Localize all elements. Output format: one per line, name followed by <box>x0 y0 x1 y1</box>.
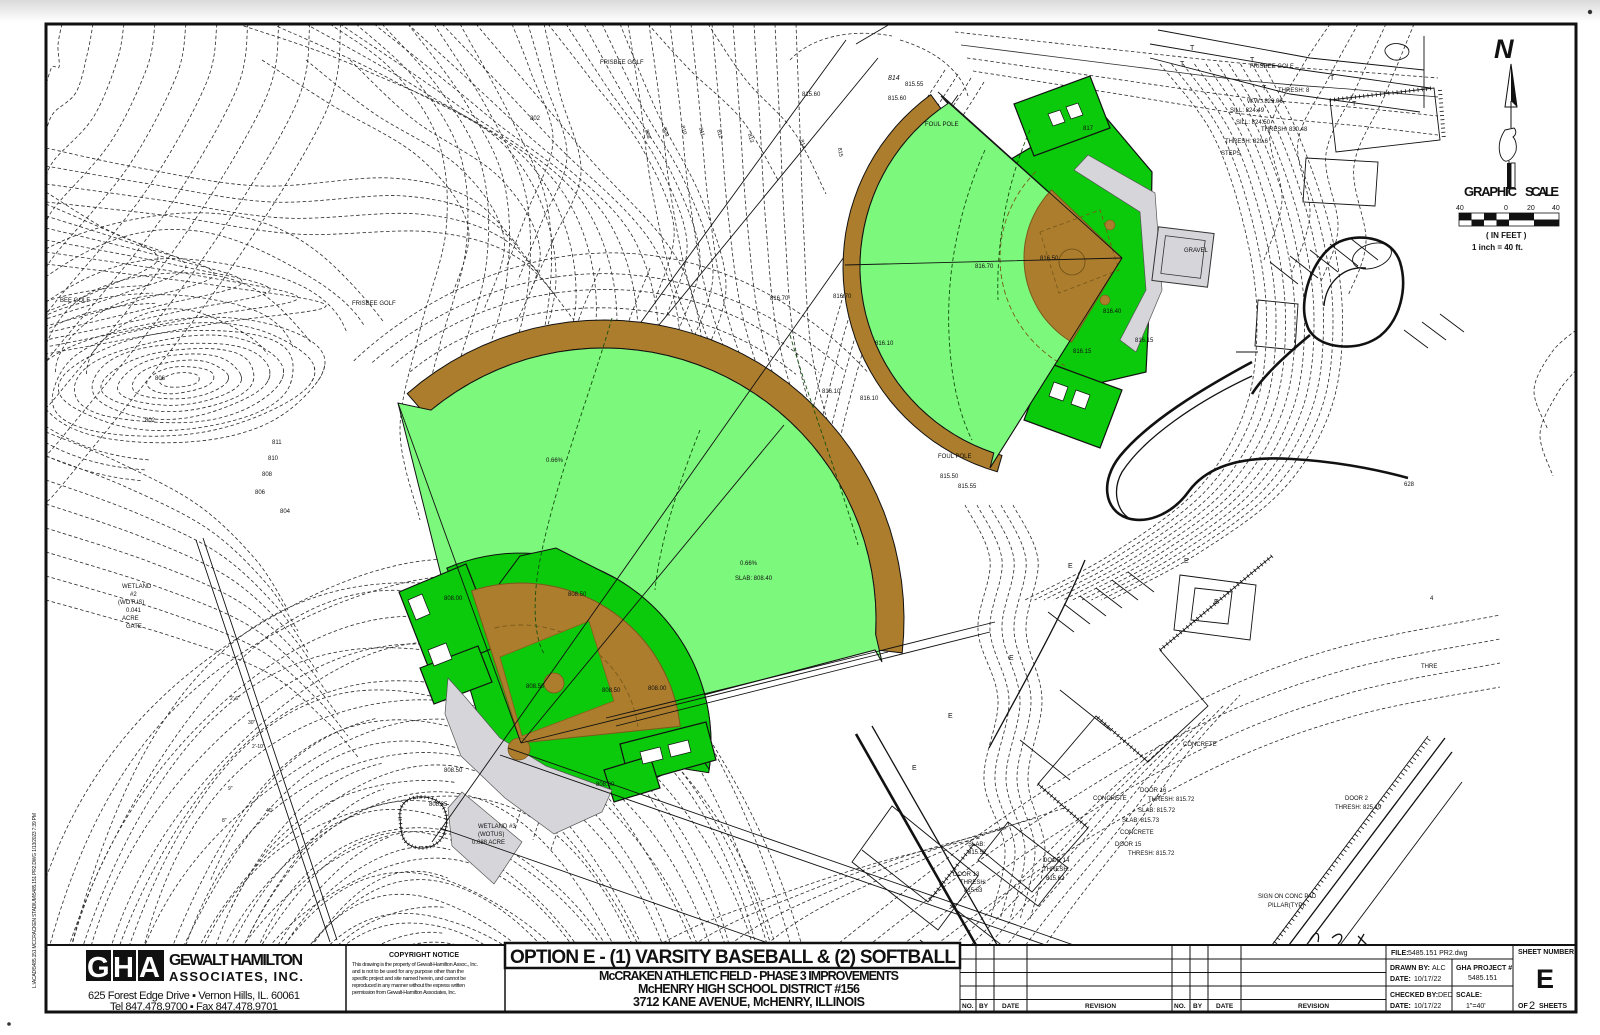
svg-text:GRAPHIC: GRAPHIC <box>1464 184 1518 199</box>
svg-text:815.60: 815.60 <box>802 92 821 98</box>
svg-text:This drawing is the property o: This drawing is the property of Gewalt-H… <box>352 962 478 968</box>
svg-text:DOOR 13: DOOR 13 <box>953 872 980 878</box>
svg-text:816.70: 816.70 <box>770 296 789 302</box>
svg-text:E: E <box>948 713 953 720</box>
svg-text:THRESH: 815.72: THRESH: 815.72 <box>1128 851 1175 857</box>
svg-text:804: 804 <box>280 509 291 515</box>
svg-text:DOOR 2: DOOR 2 <box>1345 796 1369 802</box>
svg-text:SLAB: 815.73: SLAB: 815.73 <box>1122 818 1160 824</box>
svg-text:CONCRETE: CONCRETE <box>1183 742 1217 748</box>
svg-text:0.088 ACRE: 0.088 ACRE <box>472 840 505 846</box>
svg-text:810: 810 <box>268 456 279 462</box>
svg-text:DED: DED <box>1438 992 1453 999</box>
svg-text:STEPS: STEPS <box>1221 151 1241 157</box>
svg-text:DATE:: DATE: <box>1390 1003 1411 1010</box>
svg-text:G: G <box>87 952 110 984</box>
svg-text:0.66%: 0.66% <box>546 458 564 464</box>
svg-text:THRESH: 825.19: THRESH: 825.19 <box>1335 805 1382 811</box>
svg-text:E: E <box>912 765 917 772</box>
svg-text:1 inch = 40 ft.: 1 inch = 40 ft. <box>1472 243 1523 252</box>
svg-text:BY: BY <box>1193 1003 1203 1010</box>
svg-text:OF: OF <box>1518 1003 1528 1010</box>
svg-text:SCALE:: SCALE: <box>1456 992 1482 999</box>
svg-text:FILE:: FILE: <box>1391 950 1409 957</box>
svg-text:SILL: 824.49: SILL: 824.49 <box>1230 108 1265 114</box>
svg-text:2: 2 <box>1529 1000 1535 1012</box>
svg-text:THRE: THRE <box>1421 664 1437 670</box>
svg-text:BEE GOLF: BEE GOLF <box>60 298 90 304</box>
svg-text:A: A <box>139 952 160 984</box>
svg-text:COPYRIGHT NOTICE: COPYRIGHT NOTICE <box>389 952 459 959</box>
svg-text:815.62: 815.62 <box>1046 876 1065 882</box>
svg-text:808.35: 808.35 <box>429 802 448 808</box>
svg-text:815.55: 815.55 <box>905 82 924 88</box>
svg-text:GEWALT HAMILTON: GEWALT HAMILTON <box>169 952 303 969</box>
svg-text:806: 806 <box>155 376 166 382</box>
svg-text:40: 40 <box>1456 205 1464 212</box>
svg-text:(WOTUS): (WOTUS) <box>118 600 144 606</box>
svg-text:N: N <box>1494 34 1514 64</box>
svg-text:808.50: 808.50 <box>526 684 545 690</box>
svg-text:814: 814 <box>888 75 900 82</box>
svg-text:DOOR 14: DOOR 14 <box>1043 858 1070 864</box>
svg-text:THRESH: 815.72: THRESH: 815.72 <box>1148 797 1195 803</box>
svg-text:NO.: NO. <box>962 1003 974 1010</box>
svg-text:McHENRY HIGH SCHOOL DISTRICT #: McHENRY HIGH SCHOOL DISTRICT #156 <box>638 982 860 996</box>
svg-text:THRESH: 830.48: THRESH: 830.48 <box>1261 127 1308 133</box>
svg-text:2'-10": 2'-10" <box>252 744 265 750</box>
svg-text:L:\ACAD\5485.151 MCCRACKEN STA: L:\ACAD\5485.151 MCCRACKEN STADIUM\5485.… <box>32 813 38 988</box>
svg-text:802: 802 <box>530 116 541 122</box>
svg-text:808.50: 808.50 <box>602 688 621 694</box>
svg-text:816.70: 816.70 <box>975 264 994 270</box>
svg-text:816.50: 816.50 <box>1040 256 1059 262</box>
svg-text:815.63: 815.63 <box>964 888 983 894</box>
svg-text:808.00: 808.00 <box>648 686 667 692</box>
svg-text:FRISBEE GOLF: FRISBEE GOLF <box>352 301 396 307</box>
svg-text:DATE: DATE <box>1002 1003 1020 1010</box>
svg-text:GRAVEL: GRAVEL <box>1184 248 1209 254</box>
svg-text:DOOR 16: DOOR 16 <box>1140 788 1167 794</box>
svg-text:SLAB: 815.72: SLAB: 815.72 <box>1138 808 1176 814</box>
svg-text:ASSOCIATES, INC.: ASSOCIATES, INC. <box>169 969 303 984</box>
svg-text:808.50: 808.50 <box>568 592 587 598</box>
svg-text:E: E <box>1184 558 1189 565</box>
svg-text:1"=40': 1"=40' <box>1466 1003 1486 1010</box>
svg-text:FOUL POLE: FOUL POLE <box>925 122 958 128</box>
svg-text:permission from Gewalt-Hamilto: permission from Gewalt-Hamilton Associat… <box>352 990 456 996</box>
svg-text:808.00: 808.00 <box>444 596 463 602</box>
svg-text:DATE: DATE <box>1216 1003 1234 1010</box>
svg-text:(WOTUS): (WOTUS) <box>478 832 504 838</box>
svg-text:0.041: 0.041 <box>126 608 142 614</box>
svg-text:815.52: 815.52 <box>968 850 987 856</box>
svg-text:WETLAND: WETLAND <box>122 584 152 590</box>
svg-text:30": 30" <box>248 720 256 726</box>
svg-text:2'-6": 2'-6" <box>230 696 240 702</box>
svg-text:DRAWN BY:: DRAWN BY: <box>1390 965 1430 972</box>
svg-text:FOUL POLE: FOUL POLE <box>938 454 971 460</box>
svg-text:817: 817 <box>1083 126 1094 132</box>
svg-text:CHECKED BY:: CHECKED BY: <box>1390 992 1438 999</box>
svg-text:5485.151: 5485.151 <box>1468 975 1497 982</box>
svg-text:E: E <box>1214 599 1219 606</box>
svg-text:reproduced in any manner witho: reproduced in any manner without the exp… <box>352 983 465 989</box>
svg-text:SILL: 824.50: SILL: 824.50 <box>1236 120 1271 126</box>
svg-text:T: T <box>1180 61 1185 68</box>
svg-text:NO.: NO. <box>1174 1003 1186 1010</box>
svg-text:SIGN ON CONC PAD: SIGN ON CONC PAD <box>1258 894 1317 900</box>
svg-text:T: T <box>1262 85 1267 92</box>
svg-text:811: 811 <box>272 440 282 446</box>
svg-text:PILLAR(TYP): PILLAR(TYP) <box>1268 903 1304 909</box>
svg-text:#2: #2 <box>130 592 137 598</box>
svg-text:THRESH:: THRESH: <box>960 880 987 886</box>
svg-text:806: 806 <box>255 490 266 496</box>
svg-text:808.00: 808.00 <box>596 782 615 788</box>
svg-text:W.W.: 829.06: W.W.: 829.06 <box>1247 99 1283 105</box>
svg-text:H: H <box>113 952 134 984</box>
svg-text:THRESH: 829.6: THRESH: 829.6 <box>1225 139 1269 145</box>
svg-text:and is not to be used for any: and is not to be used for any purpose ot… <box>352 969 464 975</box>
svg-text:808.50: 808.50 <box>444 768 463 774</box>
svg-text:628: 628 <box>1404 482 1415 488</box>
svg-text:816.10: 816.10 <box>822 389 841 395</box>
svg-text:0.66%: 0.66% <box>740 561 758 567</box>
svg-text:40': 40' <box>266 808 273 814</box>
svg-text:T: T <box>1250 57 1255 64</box>
svg-text:ACRE: ACRE <box>122 616 139 622</box>
svg-text:GATE: GATE <box>126 624 142 630</box>
svg-text:20: 20 <box>1527 205 1535 212</box>
svg-text:816.15: 816.15 <box>1135 338 1154 344</box>
svg-text:REVISION: REVISION <box>1085 1003 1116 1010</box>
svg-text:SLAB:: SLAB: <box>968 842 985 848</box>
svg-text:Tel 847.478.9700 ▪ Fax 847.478: Tel 847.478.9700 ▪ Fax 847.478.9701 <box>110 1001 278 1013</box>
svg-text:40: 40 <box>1552 205 1560 212</box>
svg-text:10/17/22: 10/17/22 <box>1414 976 1441 983</box>
svg-text:WETLAND #3: WETLAND #3 <box>478 824 516 830</box>
svg-text:T: T <box>1352 101 1357 108</box>
svg-text:CONCRETE: CONCRETE <box>1093 796 1127 802</box>
svg-text:5485.151 PR2.dwg: 5485.151 PR2.dwg <box>1408 950 1468 957</box>
svg-text:815.50: 815.50 <box>940 474 959 480</box>
svg-text:E: E <box>1009 655 1014 662</box>
svg-text:816.15: 816.15 <box>1073 349 1092 355</box>
svg-text:8": 8" <box>222 818 227 824</box>
svg-text:specific project and site name: specific project and site named herein, … <box>352 976 466 982</box>
svg-text:816.10: 816.10 <box>875 341 894 347</box>
svg-text:( IN FEET ): ( IN FEET ) <box>1486 231 1527 240</box>
svg-text:E: E <box>1536 964 1554 994</box>
svg-text:ALC: ALC <box>1432 965 1446 972</box>
svg-text:10/17/22: 10/17/22 <box>1414 1003 1441 1010</box>
svg-text:THRESH:: THRESH: <box>1043 867 1070 873</box>
svg-text:815.55: 815.55 <box>958 484 977 490</box>
svg-text:0: 0 <box>1504 205 1508 212</box>
svg-text:SHEET NUMBER:: SHEET NUMBER: <box>1518 949 1576 956</box>
svg-text:FRISBEE GOLF: FRISBEE GOLF <box>600 60 644 66</box>
svg-text:3712 KANE AVENUE, McHENRY, ILL: 3712 KANE AVENUE, McHENRY, ILLINOIS <box>633 995 865 1009</box>
svg-text:DATE:: DATE: <box>1390 976 1411 983</box>
svg-text:816.40: 816.40 <box>1103 309 1122 315</box>
svg-text:815.60: 815.60 <box>888 96 907 102</box>
svg-text:FRISBEE GOLF: FRISBEE GOLF <box>1250 64 1294 70</box>
svg-text:816.70: 816.70 <box>833 294 852 300</box>
svg-text:SHEETS: SHEETS <box>1539 1003 1567 1010</box>
svg-text:OPTION E - (1) VARSITY BASEBAL: OPTION E - (1) VARSITY BASEBALL & (2) SO… <box>510 947 956 968</box>
svg-text:SLAB: 808.40: SLAB: 808.40 <box>735 576 773 582</box>
svg-text:E: E <box>1068 563 1073 570</box>
svg-text:816.10: 816.10 <box>860 396 879 402</box>
svg-text:SCALE: SCALE <box>1525 184 1559 199</box>
svg-text:BY: BY <box>979 1003 989 1010</box>
svg-text:808: 808 <box>262 472 273 478</box>
svg-text:McCRAKEN ATHLETIC FIELD - PHAS: McCRAKEN ATHLETIC FIELD - PHASE 3 IMPROV… <box>599 969 899 983</box>
svg-text:GHA PROJECT #: GHA PROJECT # <box>1456 965 1512 972</box>
svg-text:DOOR 15: DOOR 15 <box>1115 842 1142 848</box>
svg-text:CONCRETE: CONCRETE <box>1120 830 1154 836</box>
svg-text:REVISION: REVISION <box>1298 1003 1329 1010</box>
svg-text:9": 9" <box>228 786 233 792</box>
svg-text:THRESH: 8: THRESH: 8 <box>1278 88 1310 94</box>
svg-text:T: T <box>1330 75 1335 82</box>
svg-text:802: 802 <box>145 418 156 424</box>
svg-text:T: T <box>1190 45 1195 52</box>
